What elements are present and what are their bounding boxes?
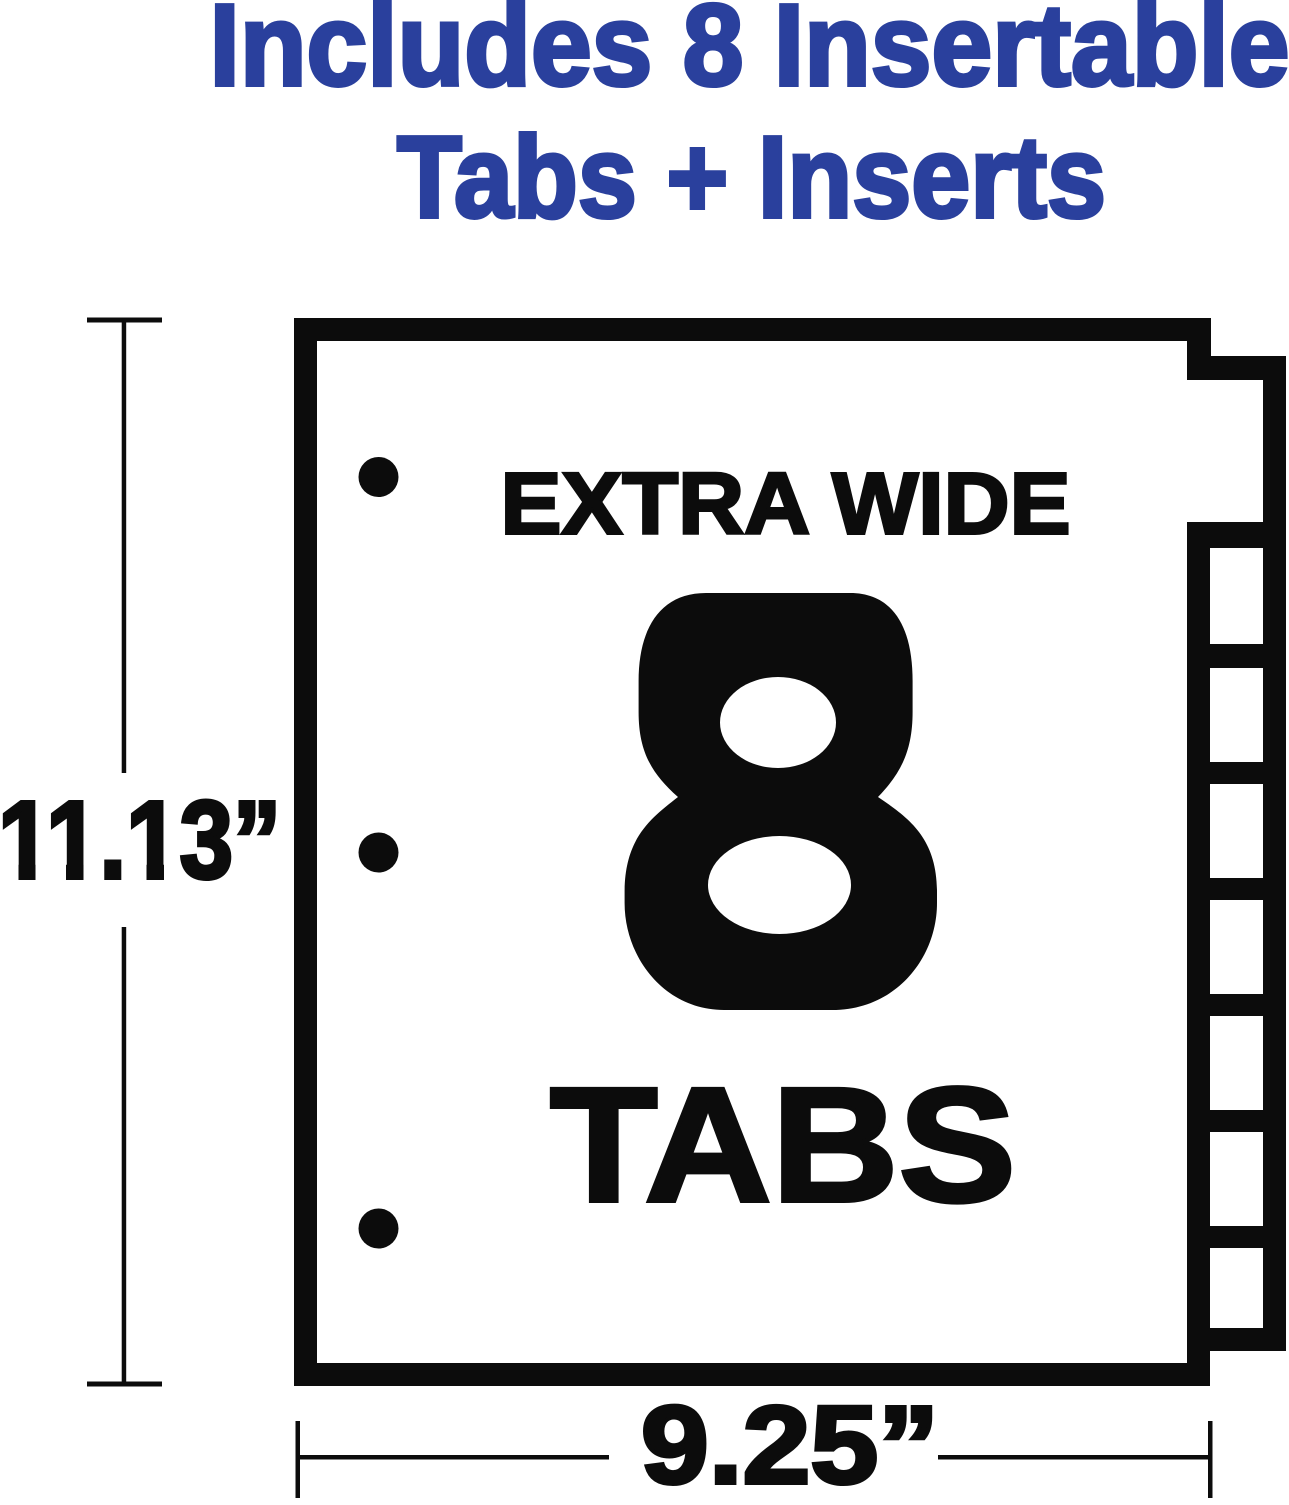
svg-text:EXTRA WIDE: EXTRA WIDE <box>501 456 1071 553</box>
svg-text:TABS: TABS <box>550 1053 1016 1236</box>
svg-text:Includes 8 Insertable: Includes 8 Insertable <box>210 0 1289 110</box>
svg-text:9.25”: 9.25” <box>641 1384 939 1500</box>
svg-text:Tabs + Inserts: Tabs + Inserts <box>397 112 1106 242</box>
svg-text:11.13”: 11.13” <box>0 779 281 902</box>
